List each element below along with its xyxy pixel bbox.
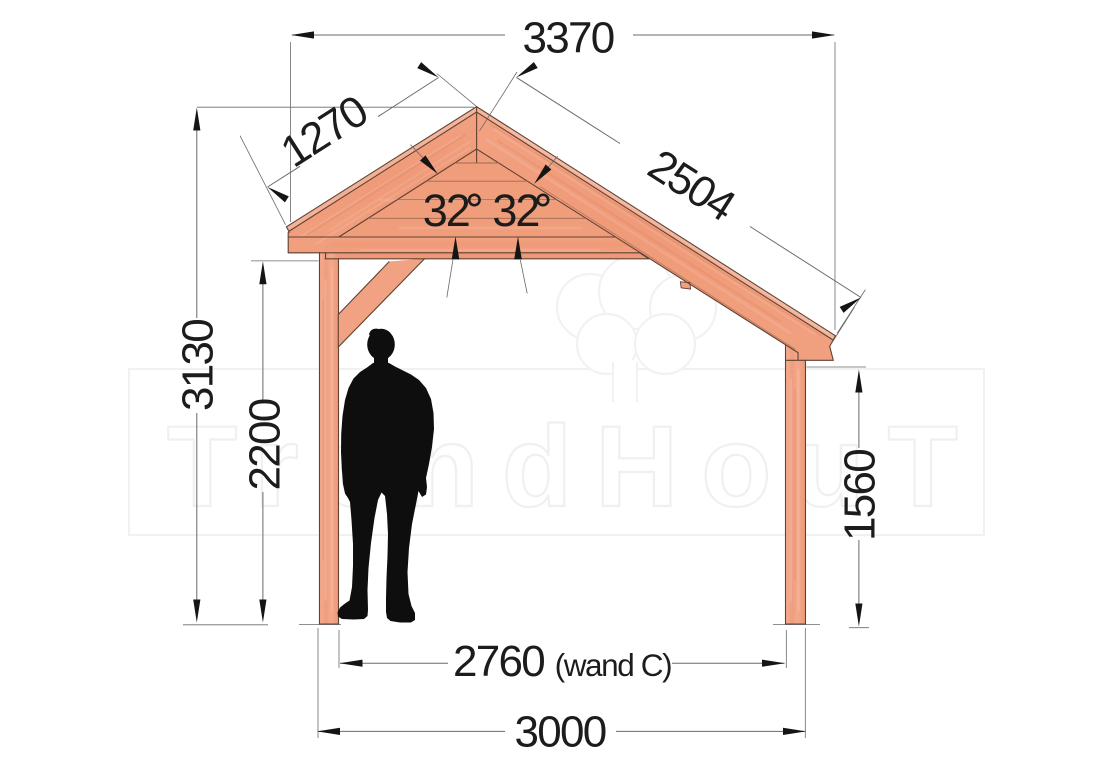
svg-text:1560: 1560 — [835, 450, 884, 541]
svg-text:3370: 3370 — [522, 14, 613, 63]
svg-text:3000: 3000 — [514, 708, 605, 757]
svg-text:32: 32 — [423, 185, 469, 236]
svg-text:32: 32 — [492, 185, 538, 236]
svg-text:2200: 2200 — [241, 399, 290, 490]
svg-text:3130: 3130 — [173, 320, 222, 411]
